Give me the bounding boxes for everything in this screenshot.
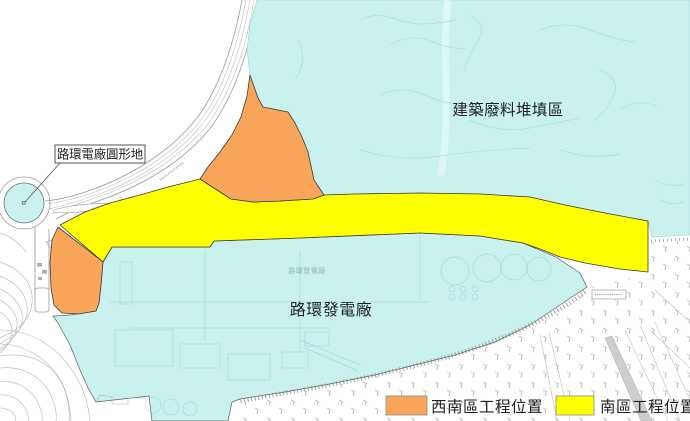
legend-swatch-southwest [386, 396, 427, 415]
power-plant-small-label: 路環發電廠 [288, 266, 326, 275]
road-stub [35, 288, 49, 312]
landfill-label: 建築廢料堆填區 [452, 100, 563, 119]
legend: 西南區工程位置 南區工程位置 [386, 396, 690, 416]
vehicle-mark [38, 277, 42, 280]
legend-label-south: 南區工程位置 [600, 398, 690, 416]
power-plant-label: 路環發電廠 [290, 300, 373, 319]
vehicle-mark [42, 270, 47, 274]
planning-map: 路環電廠圓形地 建築廢料堆填區 路環發電廠 路環發電廠 西南區工程位置 南區工程… [0, 0, 690, 421]
map-canvas: 路環電廠圓形地 建築廢料堆填區 路環發電廠 路環發電廠 西南區工程位置 南區工程… [0, 0, 690, 421]
roundabout-label: 路環電廠圓形地 [57, 147, 143, 162]
legend-swatch-south [556, 396, 594, 415]
legend-item-south: 南區工程位置 [556, 396, 690, 416]
legend-item-southwest: 西南區工程位置 [386, 396, 543, 416]
vehicle-mark [37, 263, 42, 267]
legend-label-southwest: 西南區工程位置 [431, 398, 543, 416]
